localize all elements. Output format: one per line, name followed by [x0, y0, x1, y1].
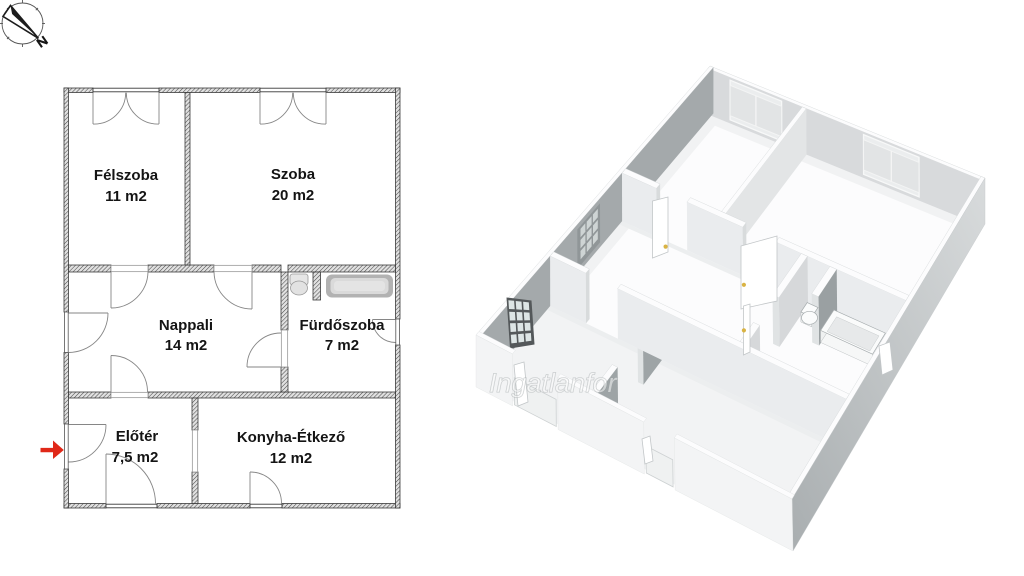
svg-text:Félszoba: Félszoba: [94, 167, 159, 184]
svg-text:7,5 m2: 7,5 m2: [112, 449, 159, 466]
svg-text:14 m2: 14 m2: [165, 337, 208, 354]
svg-text:20 m2: 20 m2: [272, 187, 315, 204]
svg-text:11 m2: 11 m2: [105, 188, 147, 205]
svg-text:12 m2: 12 m2: [270, 450, 313, 467]
svg-text:Előtér: Előtér: [116, 428, 159, 445]
svg-text:Fürdőszoba: Fürdőszoba: [300, 317, 386, 334]
svg-text:Nappali: Nappali: [159, 317, 213, 334]
svg-text:Konyha-Étkező: Konyha-Étkező: [237, 429, 345, 446]
svg-text:Ingatlanfor: Ingatlanfor: [489, 368, 618, 398]
svg-text:Szoba: Szoba: [271, 166, 316, 183]
svg-text:7 m2: 7 m2: [325, 337, 359, 354]
